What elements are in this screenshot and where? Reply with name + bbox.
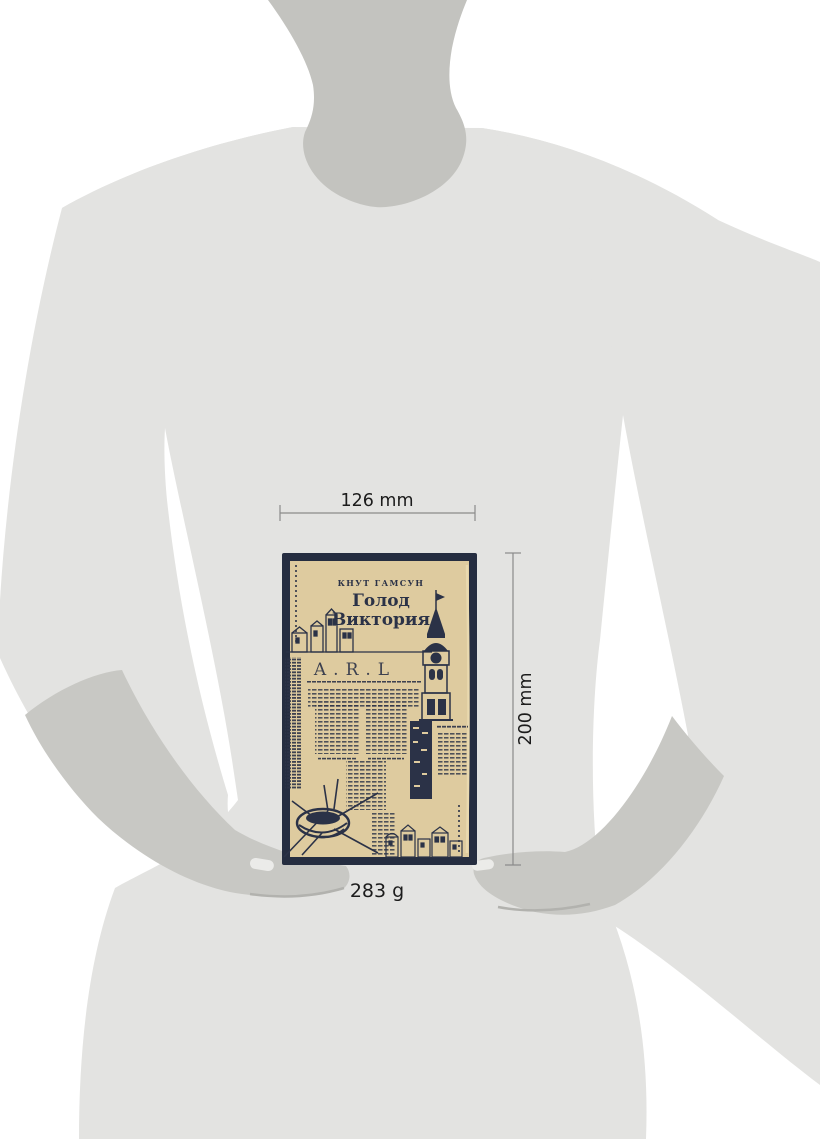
book: КНУТ ГАМСУН Голод Виктория <box>282 553 477 865</box>
cover-monogram: A.R.L <box>313 660 396 680</box>
dark-text-block <box>410 721 432 799</box>
scene: КНУТ ГАМСУН Голод Виктория <box>0 0 820 1139</box>
newsprint-col-center <box>346 760 386 810</box>
weight-label: 283 g <box>350 880 404 902</box>
cover-title-line2: Виктория <box>332 610 430 630</box>
width-label: 126 mm <box>340 491 413 511</box>
cover-title-line1: Голод <box>352 591 410 611</box>
newsprint-col-center-low <box>372 812 396 857</box>
newsprint-col-right-bold <box>437 725 468 729</box>
newsprint-col-right <box>437 731 468 777</box>
caption-line <box>306 680 422 683</box>
byline-b <box>368 757 404 759</box>
newsprint-col-b <box>365 702 407 754</box>
cover-author: КНУТ ГАМСУН <box>338 578 425 588</box>
newsprint-col-left <box>285 657 301 789</box>
newsprint-col-a <box>315 702 359 754</box>
height-label: 200 mm <box>516 672 536 745</box>
byline-a <box>318 757 356 759</box>
product-size-visualization: КНУТ ГАМСУН Голод Виктория <box>0 0 820 1139</box>
